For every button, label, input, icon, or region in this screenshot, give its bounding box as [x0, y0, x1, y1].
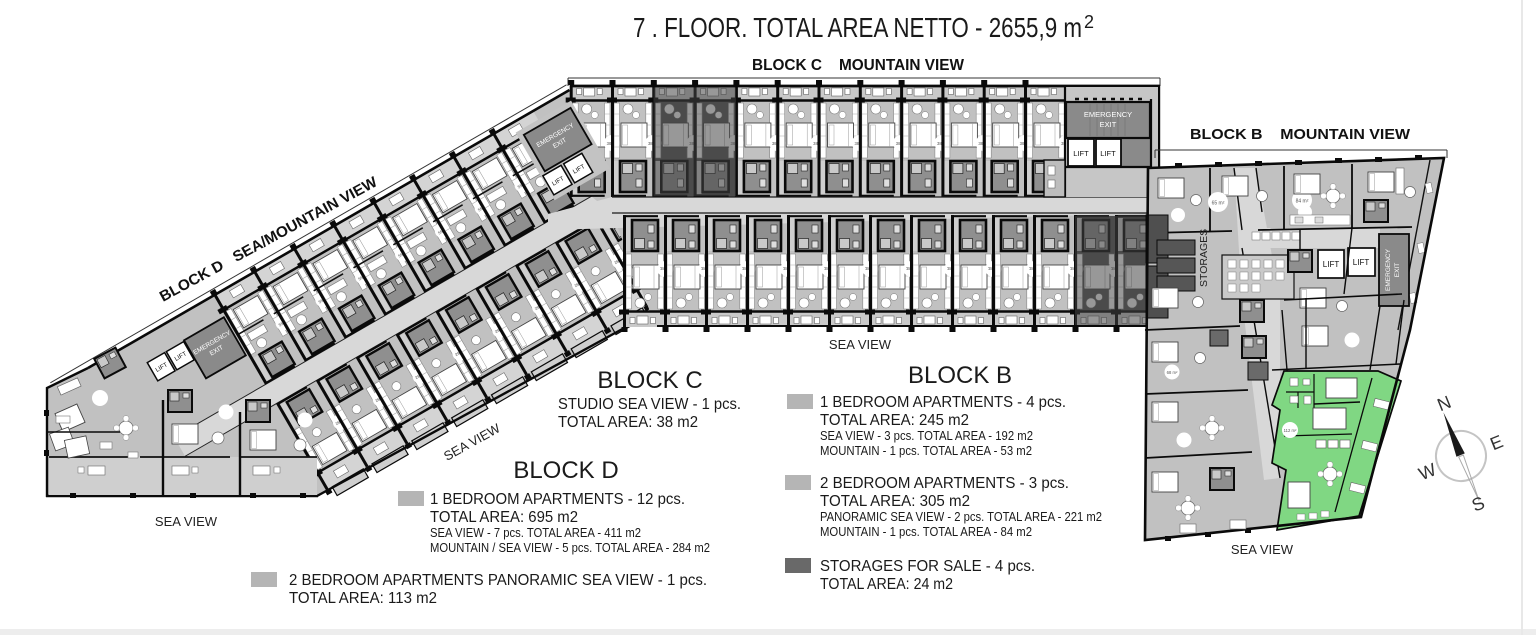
svg-text:TOTAL AREA: 24 m2: TOTAL AREA: 24 m2	[820, 576, 953, 593]
svg-text:EXIT: EXIT	[1394, 263, 1401, 277]
svg-text:STUDIO SEA VIEW - 1 pcs.: STUDIO SEA VIEW - 1 pcs.	[558, 396, 741, 413]
svg-text:TOTAL AREA: 113 m2: TOTAL AREA: 113 m2	[289, 590, 437, 607]
svg-text:SEA VIEW - 7 pcs. TOTAL AREA -: SEA VIEW - 7 pcs. TOTAL AREA - 411 m2	[430, 526, 641, 540]
svg-text:STORAGES FOR SALE - 4 pcs.: STORAGES FOR SALE - 4 pcs.	[820, 558, 1035, 575]
svg-text:LIFT: LIFT	[1100, 149, 1116, 158]
svg-text:MOUNTAIN / SEA VIEW - 5 pcs. T: MOUNTAIN / SEA VIEW - 5 pcs. TOTAL AREA …	[430, 541, 710, 555]
svg-text:EXIT: EXIT	[1100, 120, 1117, 129]
svg-text:BLOCK B: BLOCK B	[908, 362, 1012, 389]
svg-text:7 . FLOOR. TOTAL AREA NETTO -: 7 . FLOOR. TOTAL AREA NETTO - 2655,9 m	[633, 12, 1082, 43]
svg-text:1 BEDROOM APARTMENTS - 4 pcs.: 1 BEDROOM APARTMENTS - 4 pcs.	[820, 394, 1066, 411]
svg-text:STORAGES: STORAGES	[1198, 229, 1210, 287]
svg-text:TOTAL AREA: 38 m2: TOTAL AREA: 38 m2	[558, 414, 698, 431]
svg-text:MOUNTAIN - 1 pcs. TOTAL AREA -: MOUNTAIN - 1 pcs. TOTAL AREA - 53 m2	[820, 444, 1032, 458]
svg-text:2: 2	[1084, 12, 1094, 32]
svg-text:TOTAL AREA: 305 m2: TOTAL AREA: 305 m2	[820, 493, 970, 510]
svg-text:LIFT: LIFT	[1073, 149, 1089, 158]
svg-text:EMERGENCY: EMERGENCY	[1084, 110, 1132, 119]
svg-text:BLOCK D: BLOCK D	[513, 457, 618, 484]
svg-text:112 m²: 112 m²	[1284, 428, 1297, 433]
svg-text:PANORAMIC SEA VIEW - 2 pcs. TO: PANORAMIC SEA VIEW - 2 pcs. TOTAL AREA -…	[820, 510, 1102, 524]
svg-text:SEA VIEW: SEA VIEW	[1231, 542, 1294, 557]
svg-text:1 BEDROOM APARTMENTS - 12 pcs.: 1 BEDROOM APARTMENTS - 12 pcs.	[430, 491, 685, 508]
svg-text:65 m²: 65 m²	[1212, 201, 1225, 207]
svg-text:LIFT: LIFT	[1323, 260, 1340, 269]
svg-text:84 m²: 84 m²	[1296, 199, 1309, 205]
svg-text:68 m²: 68 m²	[1167, 370, 1178, 375]
svg-text:BLOCK C MOUNTAIN VIEW: BLOCK C MOUNTAIN VIEW	[752, 57, 965, 74]
svg-text:BLOCK C: BLOCK C	[597, 367, 702, 394]
svg-text:TOTAL AREA: 245 m2: TOTAL AREA: 245 m2	[820, 412, 969, 429]
svg-text:SEA VIEW: SEA VIEW	[829, 337, 892, 352]
svg-text:MOUNTAIN - 1 pcs. TOTAL AREA -: MOUNTAIN - 1 pcs. TOTAL AREA - 84 m2	[820, 525, 1032, 539]
svg-text:LIFT: LIFT	[1353, 258, 1370, 267]
svg-text:SEA VIEW - 3 pcs. TOTAL AREA -: SEA VIEW - 3 pcs. TOTAL AREA - 192 m2	[820, 429, 1033, 443]
svg-text:TOTAL AREA: 695 m2: TOTAL AREA: 695 m2	[430, 509, 578, 526]
svg-text:SEA VIEW: SEA VIEW	[155, 514, 218, 529]
svg-text:2 BEDROOM APARTMENTS PANORAMIC: 2 BEDROOM APARTMENTS PANORAMIC SEA VIEW …	[289, 572, 707, 589]
svg-text:2 BEDROOM APARTMENTS - 3 pcs.: 2 BEDROOM APARTMENTS - 3 pcs.	[820, 475, 1069, 492]
svg-text:EMERGENCY: EMERGENCY	[1385, 248, 1392, 291]
svg-text:BLOCK B MOUNTAIN VIEW: BLOCK B MOUNTAIN VIEW	[1190, 126, 1411, 143]
